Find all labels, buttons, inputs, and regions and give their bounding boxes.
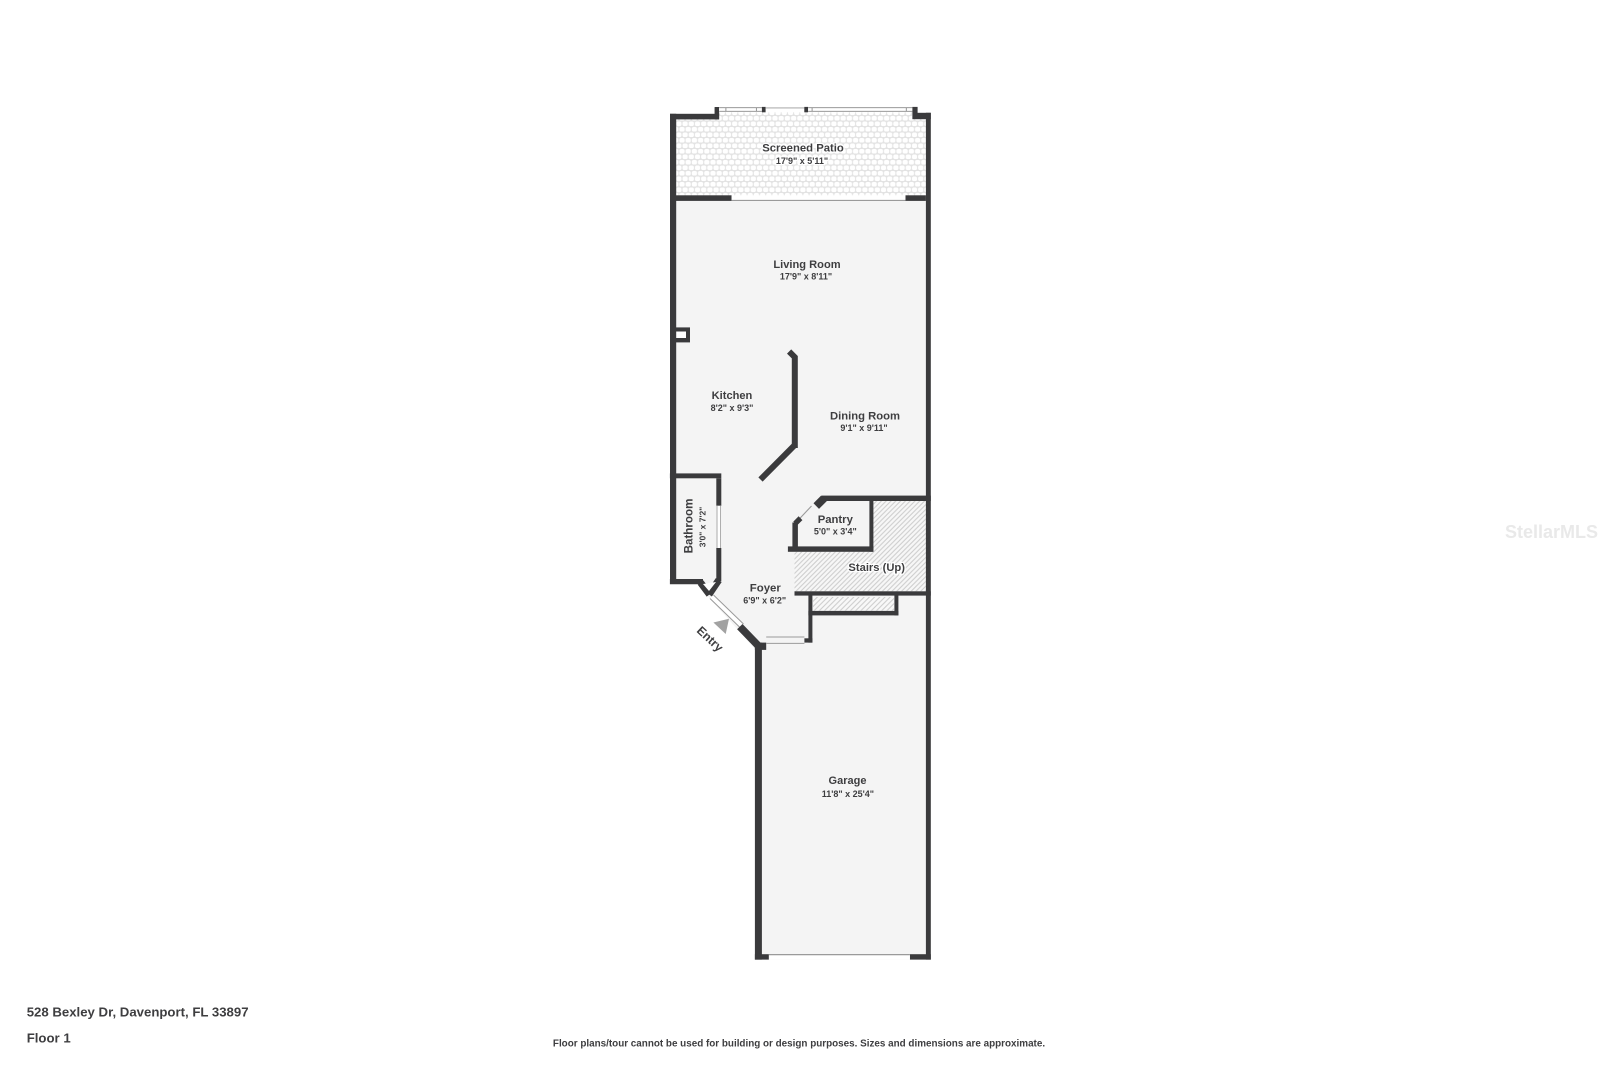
svg-text:Floor plans/tour cannot be use: Floor plans/tour cannot be used for buil… [553,1039,1045,1050]
svg-text:17'9" x 5'11": 17'9" x 5'11" [776,156,828,166]
svg-text:Kitchen: Kitchen [712,390,753,402]
svg-text:Screened Patio: Screened Patio [762,143,844,155]
svg-text:3'0" x 7'2": 3'0" x 7'2" [698,507,708,547]
svg-text:5'0" x 3'4": 5'0" x 3'4" [814,527,857,537]
svg-text:Foyer: Foyer [750,582,782,594]
svg-text:Bathroom: Bathroom [683,499,696,554]
svg-text:9'1" x 9'11": 9'1" x 9'11" [840,423,887,433]
svg-text:Floor 1: Floor 1 [27,1030,71,1045]
svg-text:8'2" x 9'3": 8'2" x 9'3" [711,403,754,413]
svg-text:6'9" x 6'2": 6'9" x 6'2" [743,596,786,606]
svg-text:17'9" x 8'11": 17'9" x 8'11" [780,272,832,282]
svg-text:11'8" x 25'4": 11'8" x 25'4" [822,789,874,799]
svg-text:528 Bexley Dr, Davenport, FL 3: 528 Bexley Dr, Davenport, FL 33897 [27,1005,249,1020]
svg-text:Pantry: Pantry [818,514,854,526]
svg-text:Living Room: Living Room [773,259,840,271]
svg-text:Stairs (Up): Stairs (Up) [848,562,905,574]
svg-text:StellarMLS: StellarMLS [1505,522,1598,542]
svg-text:Dining Room: Dining Room [830,411,900,423]
svg-text:Garage: Garage [829,775,867,787]
